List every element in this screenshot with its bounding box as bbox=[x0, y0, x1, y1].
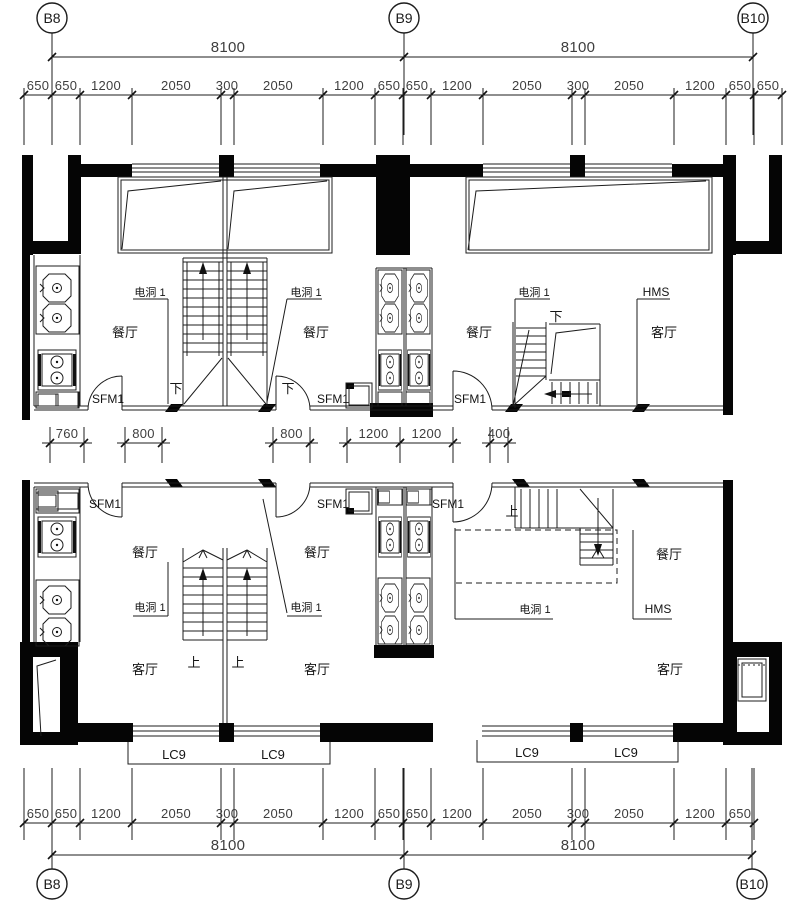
room-label: 电洞 1 bbox=[290, 601, 321, 614]
room-label: LC9 bbox=[515, 745, 539, 760]
dimension-label: 2050 bbox=[263, 78, 293, 93]
room-label: 餐厅 bbox=[466, 325, 492, 340]
grid-bubble-label: B9 bbox=[395, 876, 412, 892]
dimension-label: 650 bbox=[406, 806, 429, 821]
dimension-label: 1200 bbox=[91, 806, 121, 821]
dimension-label: 300 bbox=[216, 78, 239, 93]
dimension-label: 8100 bbox=[211, 837, 246, 854]
grid-bubble-label: B9 bbox=[395, 10, 412, 26]
dimension-label: 2050 bbox=[161, 78, 191, 93]
dimension-label: 800 bbox=[132, 426, 155, 441]
dimension-label: 760 bbox=[56, 426, 79, 441]
dimension-label: 2050 bbox=[614, 806, 644, 821]
room-label: HMS bbox=[645, 602, 672, 616]
room-label: SFM1 bbox=[317, 392, 349, 406]
room-label: 餐厅 bbox=[112, 325, 138, 340]
dimension-label: 300 bbox=[567, 806, 590, 821]
dimension-label: 800 bbox=[280, 426, 303, 441]
grid-bubble-label: B8 bbox=[43, 10, 60, 26]
dimension-label: 650 bbox=[378, 78, 401, 93]
grid-bubble-label: B8 bbox=[43, 876, 60, 892]
room-label: 上 bbox=[505, 504, 518, 519]
room-label: SFM1 bbox=[317, 497, 349, 511]
dimension-label: 1200 bbox=[334, 806, 364, 821]
room-label: 客厅 bbox=[132, 662, 158, 677]
room-label: 上 bbox=[231, 655, 244, 670]
room-label: 电洞 1 bbox=[518, 286, 549, 299]
floor-plan-svg: 81008100 6506501200205030020501200650650… bbox=[0, 0, 800, 905]
dimension-label: 650 bbox=[55, 806, 78, 821]
dimension-label: 2050 bbox=[614, 78, 644, 93]
room-label: 电洞 1 bbox=[290, 286, 321, 299]
dimension-label: 300 bbox=[567, 78, 590, 93]
dimension-label: 650 bbox=[27, 78, 50, 93]
room-label: 电洞 1 bbox=[519, 603, 550, 616]
dimension-label: 2050 bbox=[161, 806, 191, 821]
dimension-label: 650 bbox=[378, 806, 401, 821]
room-label: 餐厅 bbox=[656, 547, 682, 562]
grid-bubble-label: B10 bbox=[740, 876, 765, 892]
dimension-label: 300 bbox=[216, 806, 239, 821]
room-label: SFM1 bbox=[454, 392, 486, 406]
dimension-label: 2050 bbox=[263, 806, 293, 821]
dimension-label: 650 bbox=[729, 806, 752, 821]
dimension-label: 1200 bbox=[91, 78, 121, 93]
room-label: 下 bbox=[169, 381, 182, 396]
dimension-label: 1200 bbox=[334, 78, 364, 93]
dimension-label: 650 bbox=[757, 78, 780, 93]
dimension-label: 650 bbox=[729, 78, 752, 93]
room-label: LC9 bbox=[614, 745, 638, 760]
dimension-label: 8100 bbox=[561, 39, 596, 56]
dimension-label: 1200 bbox=[442, 78, 472, 93]
room-label: 餐厅 bbox=[304, 545, 330, 560]
room-label: HMS bbox=[643, 285, 670, 299]
room-label: 下 bbox=[281, 381, 294, 396]
dimension-label: 2050 bbox=[512, 78, 542, 93]
dimension-label: 1200 bbox=[685, 806, 715, 821]
room-label: LC9 bbox=[261, 747, 285, 762]
dimension-label: 650 bbox=[55, 78, 78, 93]
dimension-label: 650 bbox=[406, 78, 429, 93]
grid-bubble-label: B10 bbox=[741, 10, 766, 26]
dimension-label: 2050 bbox=[512, 806, 542, 821]
room-label: 电洞 1 bbox=[134, 286, 165, 299]
room-label: 客厅 bbox=[304, 662, 330, 677]
dimension-label: 8100 bbox=[561, 837, 596, 854]
room-label: SFM1 bbox=[432, 497, 464, 511]
dimension-label: 1200 bbox=[358, 426, 388, 441]
room-label: 上 bbox=[187, 655, 200, 670]
room-label: 餐厅 bbox=[132, 545, 158, 560]
room-label: 客厅 bbox=[651, 325, 677, 340]
dimension-label: 8100 bbox=[211, 39, 246, 56]
room-label: SFM1 bbox=[89, 497, 121, 511]
dimension-label: 650 bbox=[27, 806, 50, 821]
floor-plan-drawing: 81008100 6506501200205030020501200650650… bbox=[0, 0, 800, 905]
dimension-label: 1200 bbox=[442, 806, 472, 821]
room-label: 餐厅 bbox=[303, 325, 329, 340]
dimension-label: 1200 bbox=[685, 78, 715, 93]
room-label: LC9 bbox=[162, 747, 186, 762]
room-label: SFM1 bbox=[92, 392, 124, 406]
room-label: 下 bbox=[549, 309, 562, 324]
room-label: 电洞 1 bbox=[134, 601, 165, 614]
room-label: 客厅 bbox=[657, 662, 683, 677]
dimension-label: 400 bbox=[488, 426, 511, 441]
dimension-label: 1200 bbox=[411, 426, 441, 441]
